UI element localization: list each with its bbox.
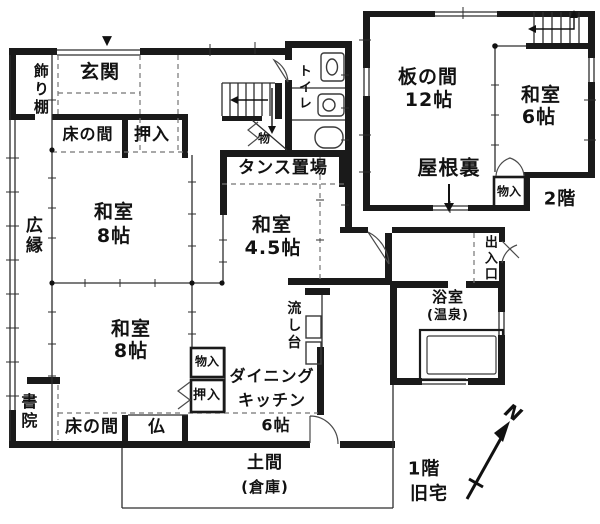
oshiire-folding-door: [178, 382, 190, 409]
stairs-2f-arrow: [536, 17, 574, 29]
room-label-oshiire-lower: 押入: [193, 389, 221, 403]
room-label-butsuma: 仏: [148, 419, 166, 437]
room-size-washitsu-2f: 6帖: [522, 108, 556, 128]
room-label-washitsu-lower: 和室: [111, 320, 151, 340]
room-label-oshiire-upper: 押入: [134, 127, 170, 145]
room-label-washitsu-mid: 和室: [252, 216, 292, 236]
room-label-doma: 土間: [247, 455, 283, 473]
room-label-washitsu-2f: 和室: [521, 86, 561, 106]
room-label-washitsu-upper: 和室: [94, 203, 134, 223]
room-label-yaneura: 屋根裏: [418, 158, 481, 179]
entrance-marker-icon: ▼: [102, 34, 112, 49]
storage-door-arc-2f: [496, 158, 524, 176]
room-label-monoire-1f: 物入: [195, 356, 219, 369]
floor-label-1f: 1階: [408, 461, 441, 480]
toilet-door-arc: [274, 60, 288, 82]
room-note-doma: (倉庫): [241, 480, 289, 496]
room-label-genkan: 玄関: [80, 63, 120, 83]
room-size-itanoma: 12帖: [405, 91, 453, 111]
room-size-dining: 6帖: [261, 418, 290, 435]
room-label-under-stairs-storage: 物: [258, 133, 270, 146]
kitchen-door-arc: [310, 416, 338, 444]
floor-sublabel-1f: 旧宅: [410, 486, 448, 505]
compass-icon: [467, 421, 510, 499]
room-note-bathroom: (温泉): [427, 309, 469, 323]
room-label-nagashidai: 流し台: [286, 301, 301, 352]
room-label-bathroom: 浴室: [432, 290, 464, 306]
floorplan-page: ▼ 飾り棚 玄関 床の間 押入 和室 8帖 広縁 トイレ 物 タンス置場 和室 …: [0, 0, 600, 524]
room-label-shoin: 書院: [19, 393, 36, 431]
under-stairs-folding-door: [248, 122, 258, 146]
room-size-washitsu-upper: 8帖: [97, 227, 131, 247]
room-label-kazaridana: 飾り棚: [32, 63, 48, 117]
room-label-monoire-2f: 物入: [497, 186, 521, 199]
room-label-deiriguchi: 出入口: [482, 235, 496, 283]
toilet-fixtures-icon: [315, 53, 344, 148]
room-label-tokonoma-upper: 床の間: [62, 127, 113, 144]
floor-label-2f: 2階: [544, 191, 577, 210]
room-label-tokonoma-lower: 床の間: [65, 419, 119, 437]
exit-door-arc: [502, 241, 519, 263]
walls-second-floor: [363, 11, 595, 211]
room-label-hiroen: 広縁: [22, 216, 40, 256]
attic-arrow-icon: [444, 184, 454, 212]
room-label-dining-line1: ダイニング: [229, 369, 314, 386]
room-size-washitsu-lower: 8帖: [114, 342, 148, 362]
room-label-tansu-okiba: タンス置場: [238, 160, 328, 178]
room-label-toilet: トイレ: [296, 64, 310, 112]
room-size-washitsu-mid: 4.5帖: [245, 239, 302, 259]
bathtub-icon: [420, 330, 503, 380]
room-label-dining-line2: キッチン: [238, 393, 306, 410]
room-label-itanoma: 板の間: [398, 68, 458, 88]
